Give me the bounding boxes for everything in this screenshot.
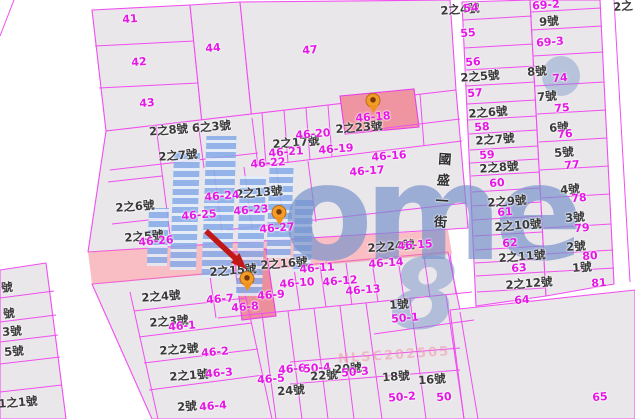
location-pin[interactable] <box>240 271 255 286</box>
parcel-label: 58 <box>474 121 490 133</box>
parcel-label: 46-22 <box>250 156 286 170</box>
parcel-label: 2之8號 <box>479 161 519 176</box>
parcel-label: 46-14 <box>368 256 404 270</box>
parcel-label: 60 <box>489 177 505 189</box>
parcel-label: 46-3 <box>205 366 233 379</box>
parcel-label: 69-2 <box>532 0 560 12</box>
parcel-label: 46-8 <box>231 300 259 313</box>
parcel-label: 24號 <box>277 384 305 398</box>
parcel-label: 46-16 <box>371 149 407 163</box>
parcel-label: 46-24 <box>204 189 240 203</box>
parcel-label: 74 <box>552 72 568 84</box>
parcel-label: 59 <box>479 149 495 161</box>
parcel-label: 44 <box>205 42 221 54</box>
parcel-label: 46-9 <box>257 288 285 301</box>
parcel-label: 2之7號 <box>158 149 198 164</box>
parcel-label: 75 <box>554 102 570 114</box>
parcel-label: 56 <box>465 56 481 68</box>
map-canvas[interactable]: ome 8 NLSC202505 國盛一街 41424344472之8號 6之3… <box>0 0 635 419</box>
parcel-label: 47 <box>302 44 318 56</box>
parcel-label: 79 <box>574 222 590 234</box>
parcel-label: 42 <box>131 56 147 68</box>
parcel-label: 65 <box>592 391 608 403</box>
parcel-label: 76 <box>557 128 573 140</box>
parcel-label: 2之4號 <box>141 290 181 305</box>
parcel-label: 5號 <box>4 346 24 359</box>
parcel-label: 1號 <box>389 299 409 312</box>
parcel-label: 43 <box>139 97 155 109</box>
parcel-label: 46-1 <box>168 319 196 332</box>
parcel-label: 55 <box>460 27 476 39</box>
parcel-label: 57 <box>467 87 483 99</box>
parcel-label: 46-4 <box>199 399 227 412</box>
parcel-label: 2之2號 <box>159 343 199 358</box>
location-pin[interactable] <box>272 205 287 220</box>
parcel-label: 63 <box>511 262 527 274</box>
parcel-label: 62 <box>502 237 518 249</box>
parcel-label: 77 <box>564 159 580 171</box>
parcel-label: 46-25 <box>181 208 217 222</box>
parcel-label: 1號 <box>572 262 592 275</box>
parcel-label: 81 <box>591 277 607 289</box>
parcel-label: 46-26 <box>138 234 174 248</box>
parcel-label: 18號 <box>382 370 410 384</box>
parcel-label: 2之 <box>613 1 633 14</box>
location-pin[interactable] <box>366 93 381 108</box>
parcel-label: 46-19 <box>318 142 354 156</box>
parcel-label: 46-20 <box>295 127 331 141</box>
parcel-label: 9號 <box>539 16 559 29</box>
parcel-label: 46-7 <box>206 292 234 305</box>
parcel-label: 2之6號 <box>115 200 155 215</box>
parcel-label: 50 <box>436 391 452 403</box>
parcel-label: 54 <box>463 2 479 14</box>
parcel-label: 64 <box>514 294 530 306</box>
parcel-label: 46-6 <box>278 362 306 375</box>
parcel-label: 46-13 <box>345 283 381 297</box>
parcel-label: 50-1 <box>391 311 419 324</box>
parcel-label: 2號 <box>177 401 197 414</box>
parcel-label: 2之1號 <box>169 369 209 384</box>
parcel-label: 號 <box>1 282 13 294</box>
parcel-label: 1之1號 <box>0 396 38 411</box>
parcel-label: 8號 <box>527 66 547 79</box>
parcel-label: 61 <box>497 206 513 218</box>
parcel-label: 2之6號 <box>468 106 508 121</box>
parcel-label: 16號 <box>418 373 446 387</box>
parcel-label: 50-2 <box>388 390 416 403</box>
parcel-label: 46-23 <box>233 203 269 217</box>
parcel-label: 46-11 <box>299 261 335 275</box>
parcel-label: 2之7號 <box>475 133 515 148</box>
parcel-label: 3號 <box>2 326 22 339</box>
parcel-label: 46-2 <box>201 345 229 358</box>
parcel-label: 號 <box>3 308 15 320</box>
parcel-label: 2之5號 <box>460 70 500 85</box>
parcel-label: 50-3 <box>341 365 369 378</box>
parcel-label: 78 <box>571 192 587 204</box>
parcel-boundaries <box>0 0 635 419</box>
parcel-label: 46-15 <box>397 238 433 252</box>
parcel-label: 41 <box>122 13 138 25</box>
parcel-label: 69-3 <box>536 35 564 48</box>
parcel-label: 46-17 <box>349 164 385 178</box>
